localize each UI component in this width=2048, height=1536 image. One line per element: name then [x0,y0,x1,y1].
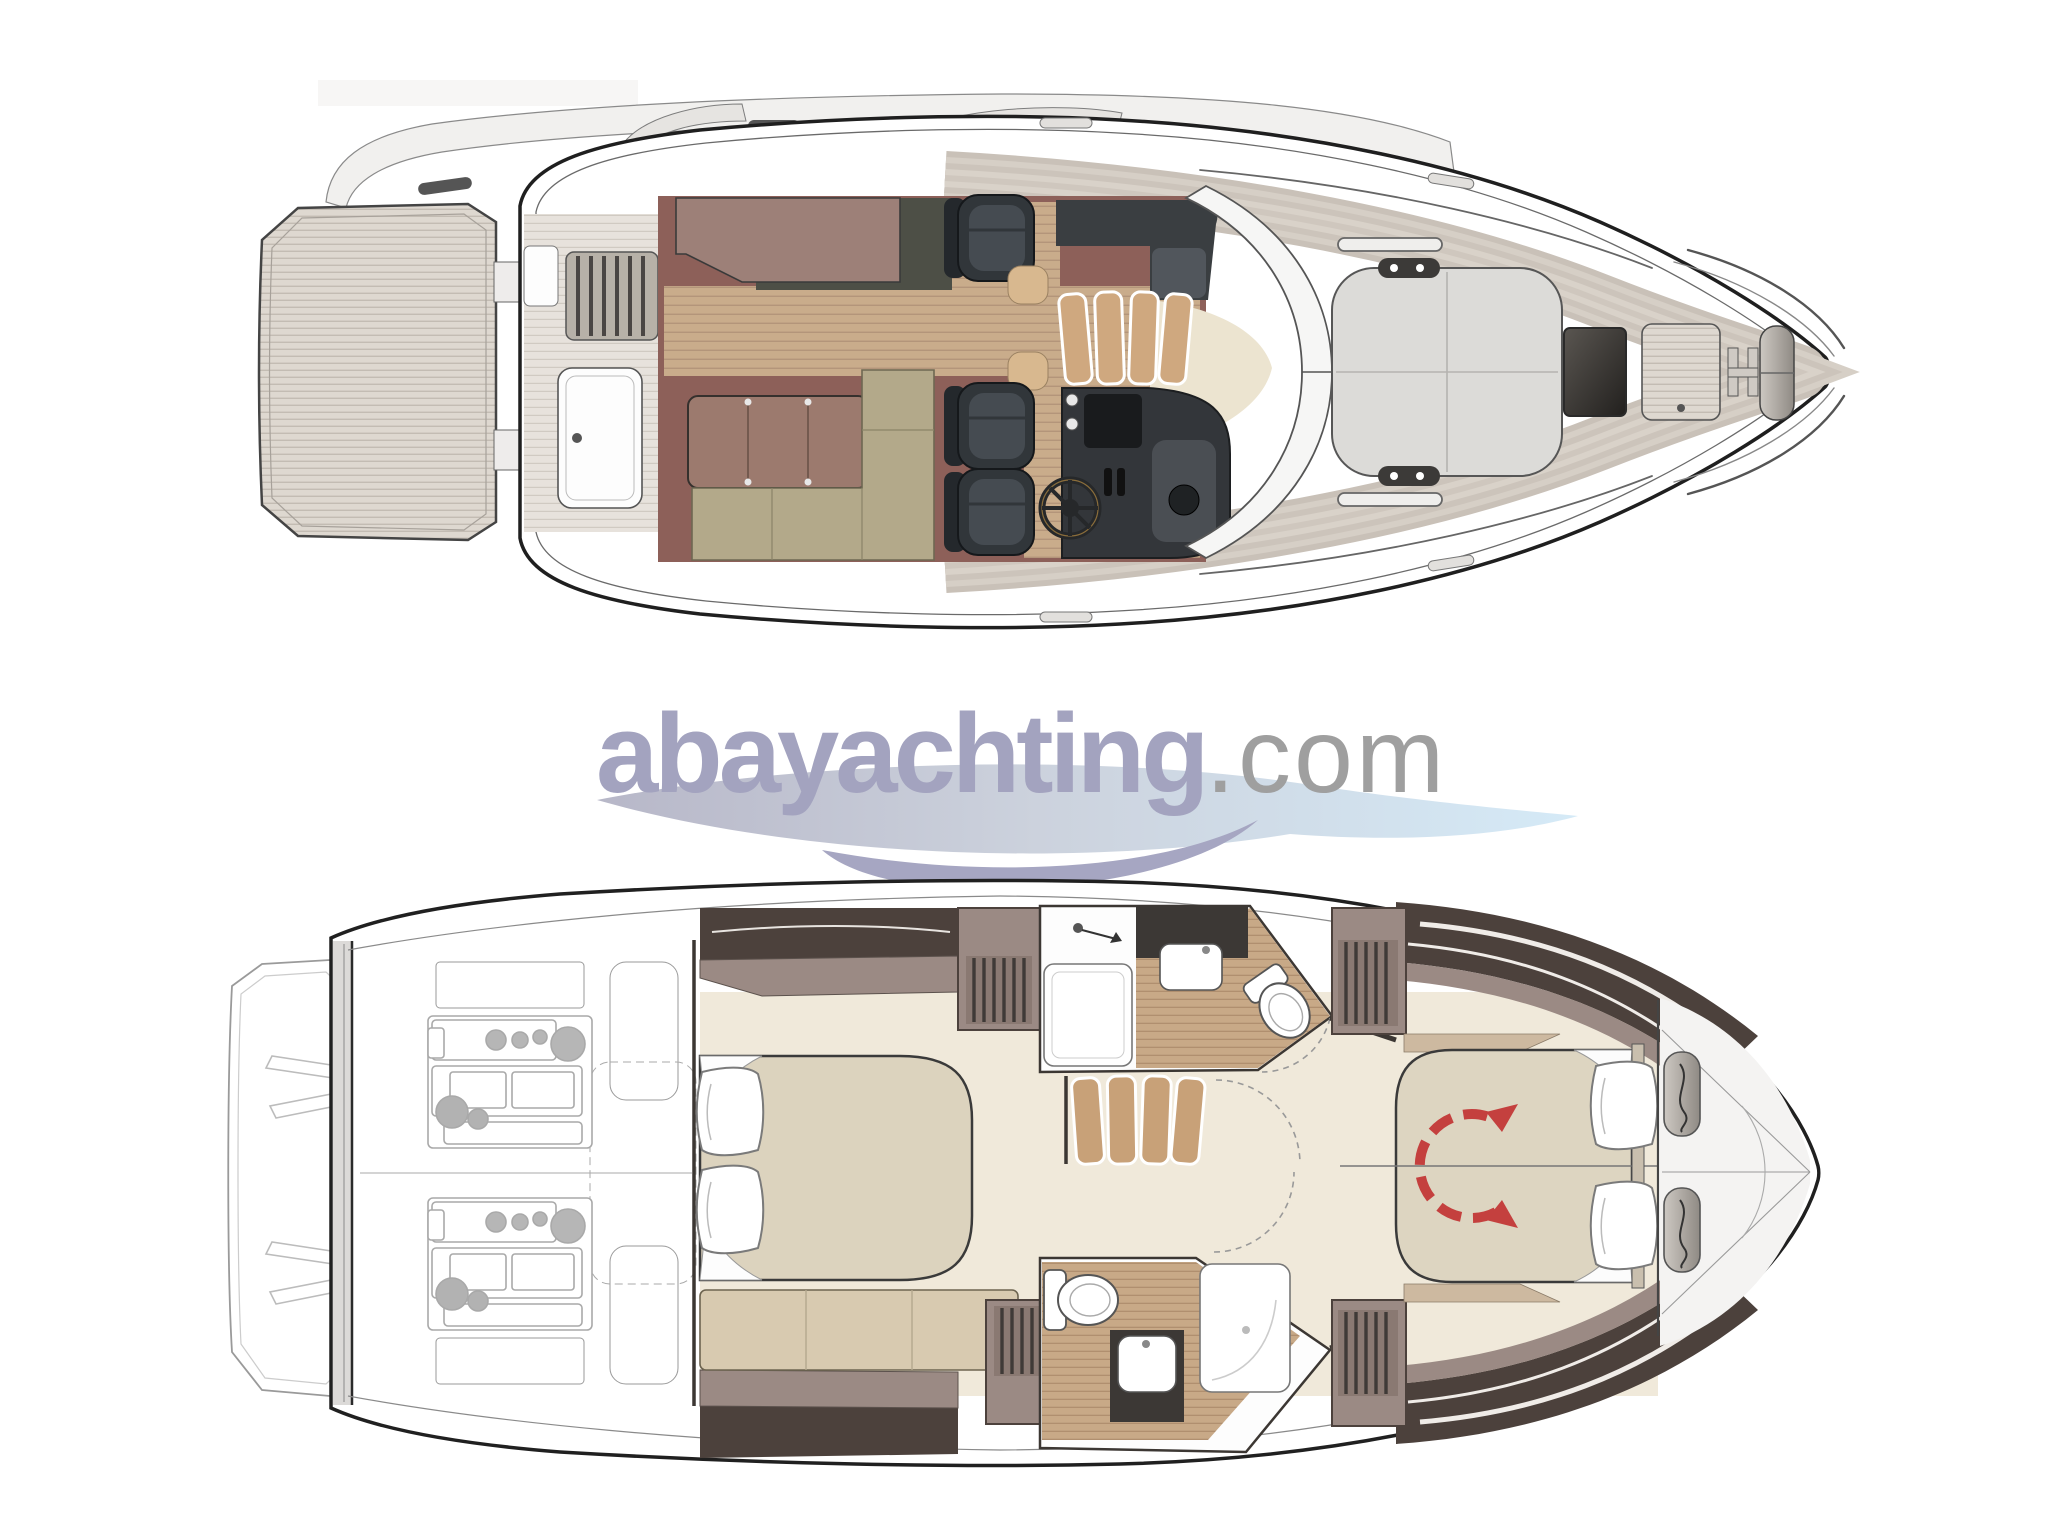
bow-fender-2 [1664,1188,1700,1272]
foredeck-hatch [1564,328,1626,416]
transom-step-2 [494,430,522,470]
wardrobe-slatted-3 [1332,908,1406,1034]
aft-cabin-wall-mauve-2 [700,1370,958,1408]
steering-wheel-icon [1042,480,1098,536]
engine-port [428,1016,592,1148]
transom-wall [333,941,352,1405]
wardrobe-slatted [958,908,1040,1030]
shower-tray [1044,964,1132,1066]
lower-steps [1066,1076,1206,1166]
tank-outline [436,962,584,1008]
throttle-levers [1117,468,1125,496]
swim-platform [259,204,496,540]
yacht-layout-page: abayachting.com [0,0,2048,1536]
engine-starboard [428,1198,592,1330]
cockpit-blinds [566,252,658,340]
copilot-bench-cushion [1152,248,1206,298]
pillow-3 [1591,1062,1658,1150]
cockpit-locker [524,246,558,306]
helm-seat-lower [944,383,1034,469]
pillow-4 [1591,1182,1658,1270]
helm-seat-lower-2 [944,469,1034,555]
roof-latch-2 [417,176,472,195]
pillow-2 [697,1166,764,1254]
wardrobe-slatted-4 [1332,1300,1406,1426]
locker-outline [610,962,678,1100]
aft-cabin-wall-dark-2 [700,1406,958,1458]
helm-screen [1084,394,1142,448]
forepeak [1660,998,1810,1346]
hardtop-shadow [318,80,638,106]
main-deck-plan [259,80,1844,628]
site-watermark-logo: abayachting.com [596,698,1447,810]
grab-handle-2 [1338,493,1442,506]
lower-deck-plan [228,881,1819,1466]
salon-table [688,396,868,488]
locker-outline-2 [610,1246,678,1384]
pillow [697,1068,764,1156]
sink [1160,944,1222,990]
aft-cabin-bench [700,1290,1018,1370]
armrest-pod [1008,266,1048,304]
cockpit-hatch-door [558,368,642,508]
tank-outline-2 [436,1338,584,1384]
bow-fender [1664,1052,1700,1136]
shower-tray-2 [1200,1264,1290,1392]
transom-step [494,262,522,302]
logo-tld-text: .com [1206,697,1448,815]
logo-brand-text: abayachting [596,691,1206,816]
salon [658,195,1272,562]
grab-handle [1338,238,1442,251]
aft-cabin-wall-dark [700,908,958,960]
